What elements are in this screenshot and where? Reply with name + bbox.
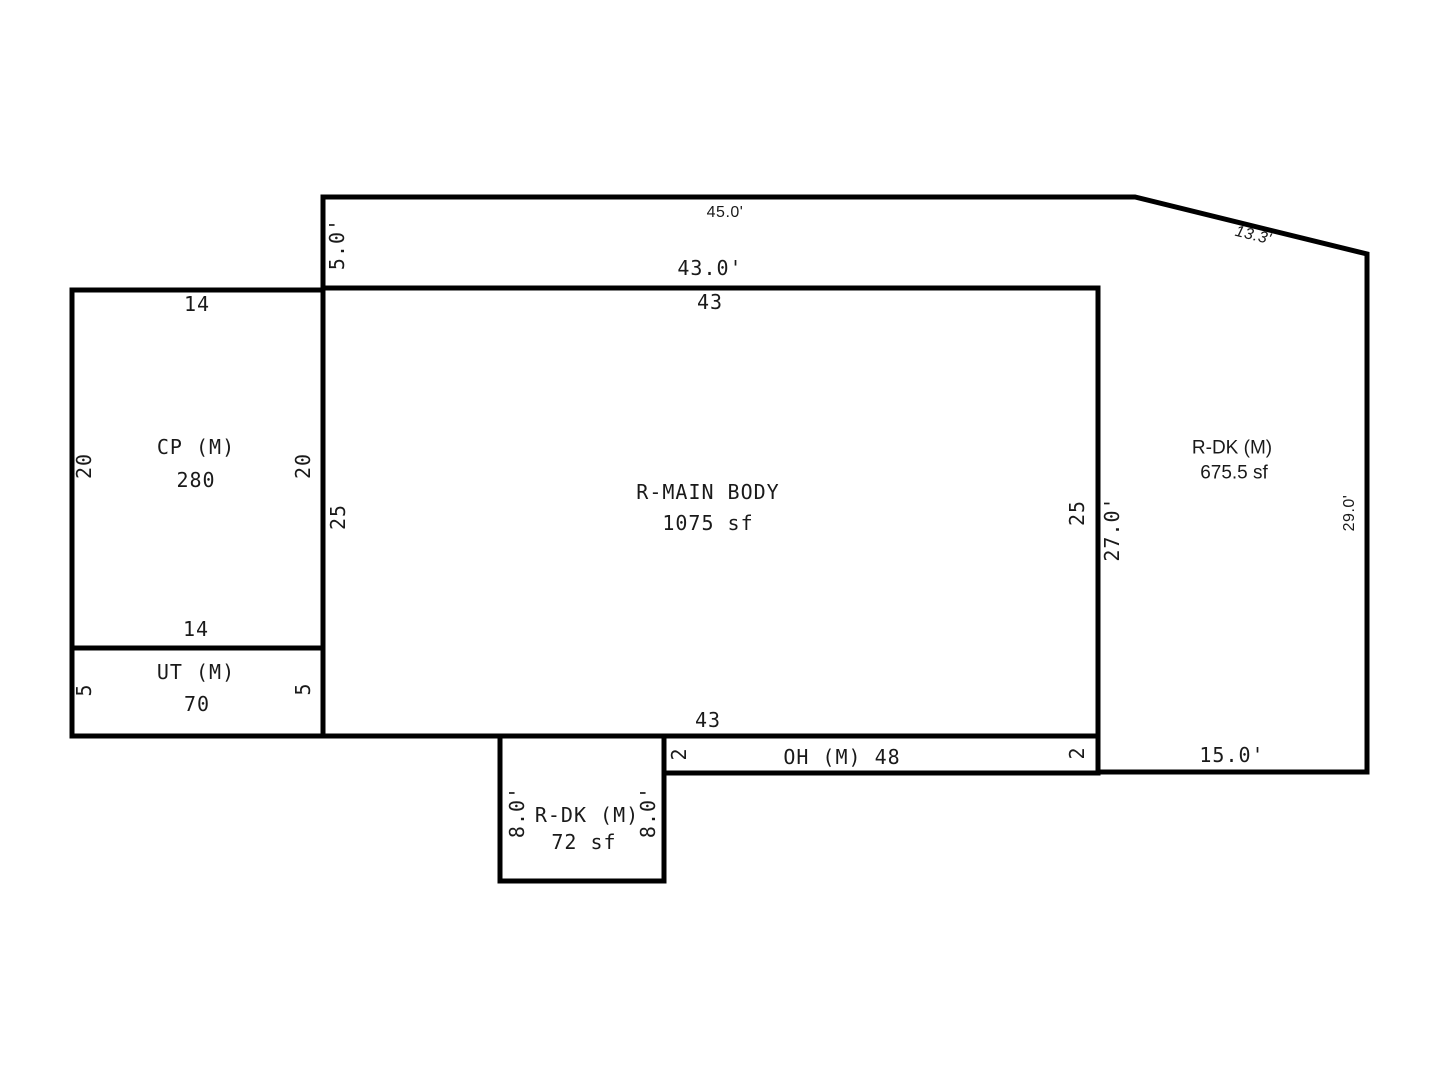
floor-plan-outlines [0, 0, 1440, 1080]
dim-carport-right-label: 20 [293, 453, 313, 479]
utility-name: UT (M) [157, 662, 235, 682]
dim-deck-small-left-label: 8.0' [507, 786, 527, 838]
dim-outer-top-label: 45.0' [707, 205, 744, 221]
rear-deck-large-area: 675.5 sf [1200, 464, 1268, 483]
dim-main-top-feet-label: 43.0' [677, 258, 742, 278]
dim-main-top-label: 43 [697, 292, 723, 312]
dim-outer-left-label: 5.0' [327, 218, 347, 270]
dim-main-right-outer-label: 27.0' [1102, 496, 1122, 561]
dim-utility-right-label: 5 [293, 682, 313, 695]
dim-outer-right-label: 29.0' [1342, 495, 1358, 532]
dim-deck-small-right-label: 8.0' [638, 786, 658, 838]
rear-deck-small-area: 72 sf [551, 832, 616, 852]
overhang-name: OH (M) 48 [783, 747, 900, 767]
dim-utility-left-label: 5 [74, 683, 94, 696]
dim-carport-bottom-label: 14 [183, 619, 209, 639]
carport-name: CP (M) [157, 437, 235, 457]
dim-main-bottom-label: 43 [695, 710, 721, 730]
carport-area: 280 [176, 470, 215, 490]
dim-overhang-left-label: 2 [669, 747, 689, 760]
dim-carport-top-label: 14 [184, 294, 210, 314]
main-body-name: R-MAIN BODY [636, 482, 779, 502]
dim-outer-bottom-label: 15.0' [1199, 745, 1264, 765]
main-body-area: 1075 sf [662, 513, 753, 533]
dim-carport-left-label: 20 [74, 453, 94, 479]
utility-area: 70 [184, 694, 210, 714]
rear-deck-large-name: R-DK (M) [1192, 439, 1272, 458]
dim-main-left-label: 25 [328, 504, 348, 530]
dim-overhang-right-label: 2 [1067, 746, 1087, 759]
dim-main-right-label: 25 [1067, 500, 1087, 526]
rear-deck-small-name: R-DK (M) [535, 805, 639, 825]
rear-deck-large-outline [323, 197, 1367, 772]
sketch-canvas: 45.0' 13.3' 29.0' 5.0' 15.0' R-DK (M) 67… [0, 0, 1440, 1080]
